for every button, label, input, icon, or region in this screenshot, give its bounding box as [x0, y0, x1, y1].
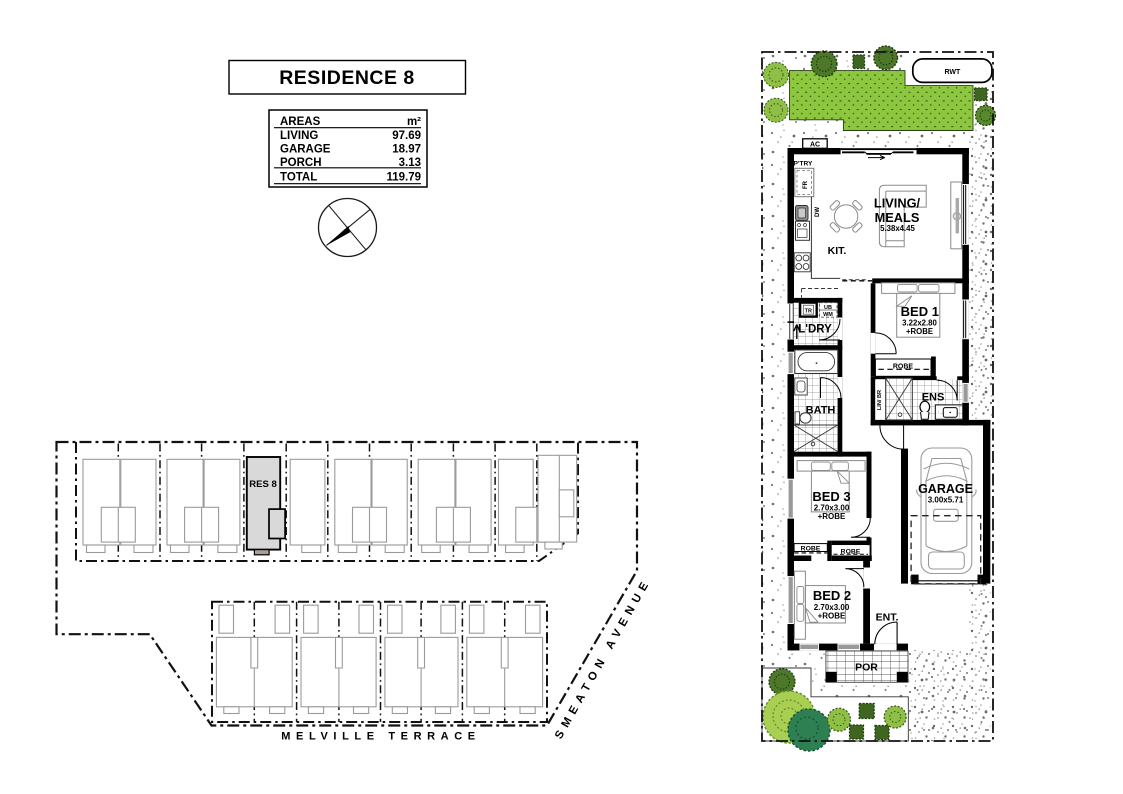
svg-text:KIT.: KIT. [828, 245, 847, 257]
svg-text:LIN/ BR: LIN/ BR [877, 390, 883, 410]
svg-text:BED 3: BED 3 [812, 489, 850, 504]
svg-text:AREAS: AREAS [280, 116, 321, 128]
svg-text:MELVILLE TERRACE: MELVILLE TERRACE [281, 731, 480, 743]
svg-text:TR: TR [805, 309, 812, 315]
svg-text:3.13: 3.13 [399, 157, 421, 169]
svg-text:UB: UB [824, 305, 832, 311]
svg-text:BED 1: BED 1 [901, 304, 939, 319]
svg-text:18.97: 18.97 [392, 144, 421, 156]
svg-text:FR: FR [803, 180, 809, 189]
svg-text:+ROBE: +ROBE [818, 512, 846, 521]
svg-text:GARAGE: GARAGE [918, 482, 973, 496]
svg-text:5.38x4.45: 5.38x4.45 [880, 224, 915, 233]
svg-text:MEALS: MEALS [875, 210, 920, 225]
svg-text:+ROBE: +ROBE [818, 612, 846, 621]
svg-text:PORCH: PORCH [280, 157, 322, 169]
svg-text:P'TRY: P'TRY [794, 161, 814, 168]
svg-text:LIVING: LIVING [280, 130, 318, 142]
svg-text:RES 8: RES 8 [249, 479, 276, 490]
svg-text:+ROBE: +ROBE [906, 327, 933, 336]
svg-text:L'DRY: L'DRY [798, 323, 832, 335]
svg-text:ROBE: ROBE [801, 546, 821, 553]
svg-text:ENT.: ENT. [876, 612, 899, 624]
svg-text:119.79: 119.79 [386, 172, 421, 184]
svg-text:AC: AC [810, 142, 820, 149]
svg-text:3.00x5.71: 3.00x5.71 [928, 496, 964, 505]
svg-text:m²: m² [407, 116, 421, 128]
svg-text:LIVING/: LIVING/ [874, 196, 921, 211]
svg-text:WM: WM [823, 312, 833, 318]
svg-text:97.69: 97.69 [392, 130, 421, 142]
svg-text:ENS: ENS [922, 392, 945, 404]
svg-text:GARAGE: GARAGE [280, 144, 331, 156]
svg-text:BED 2: BED 2 [813, 588, 851, 603]
svg-text:TOTAL: TOTAL [280, 172, 317, 184]
svg-text:RWT: RWT [944, 69, 961, 76]
svg-text:POR: POR [855, 662, 878, 674]
svg-text:DW: DW [815, 207, 821, 217]
svg-text:SMEATON AVENUE: SMEATON AVENUE [553, 576, 654, 741]
svg-text:RESIDENCE 8: RESIDENCE 8 [279, 67, 415, 89]
